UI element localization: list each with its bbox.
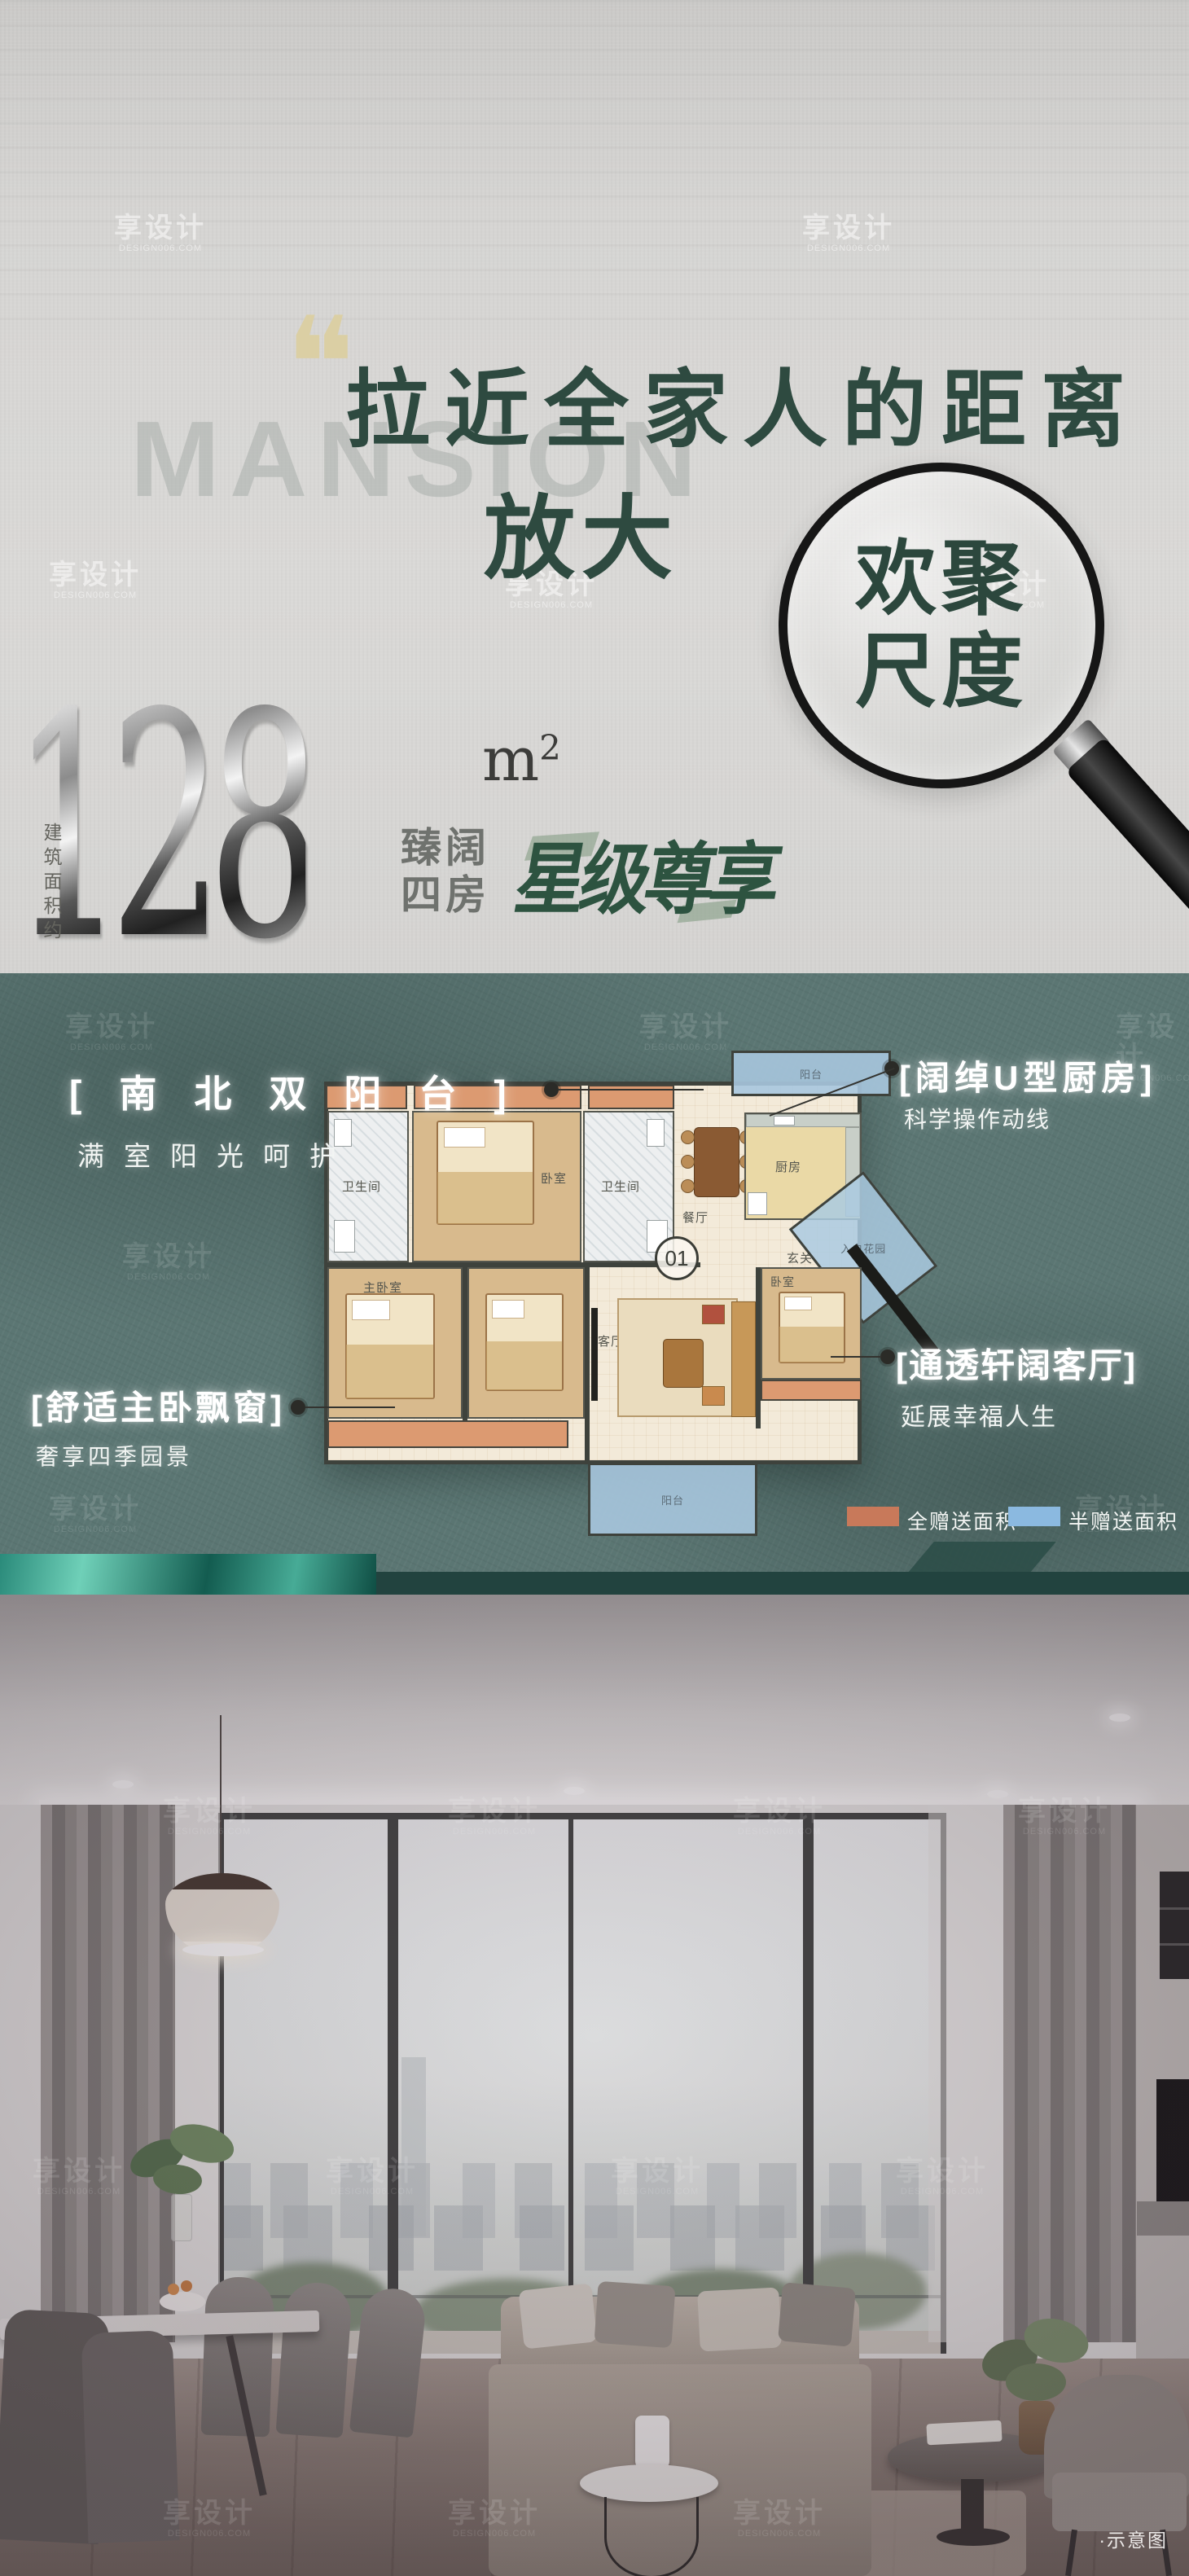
main-title: 拉近全家人的距离 [345, 365, 1140, 456]
schematic-caption: ·示意图 [1099, 2525, 1168, 2552]
unit-number-badge: 01 [655, 1236, 699, 1280]
bed [779, 1292, 845, 1363]
tv-unit [591, 1308, 598, 1401]
legend-label-full-gift: 全赠送面积 [907, 1506, 1017, 1535]
bay-window-strip [761, 1380, 862, 1401]
callout-line [831, 1356, 881, 1358]
dark-teal-bar [376, 1572, 1189, 1595]
layout-line2: 四房 [401, 871, 490, 919]
photo-tint-overlay [0, 1595, 1189, 2576]
bed [437, 1121, 534, 1225]
lens-word-top: 欢聚 [855, 533, 1028, 625]
dining-chair [681, 1130, 695, 1144]
armchair [702, 1305, 725, 1324]
bed [485, 1293, 564, 1391]
callout-title-kitchen: [阔绰U型厨房] [899, 1051, 1156, 1100]
lens-word-bottom: 尺度 [855, 625, 1028, 718]
callout-sub-baywindow: 奢享四季园景 [36, 1439, 192, 1472]
magnifier-lens-icon: 欢聚 尺度 [779, 463, 1104, 788]
legend-swatch-half-gift [1008, 1507, 1060, 1526]
hero-section: 享设计DESIGN006.COM 享设计DESIGN006.COM 享设计DES… [0, 0, 1189, 973]
callout-title-livingroom: [通透轩阔客厅] [896, 1338, 1137, 1388]
callout-sub-kitchen: 科学操作动线 [904, 1102, 1051, 1134]
callout-dot [544, 1082, 559, 1097]
callout-dot [291, 1400, 305, 1415]
dining-chair [681, 1155, 695, 1169]
build-area-note: 建筑面积约 [37, 823, 65, 945]
floorplan: 阳台 卫生间 卧室 卫生间 餐厅 [318, 1049, 924, 1538]
armchair [702, 1386, 725, 1406]
room-balcony-top: 阳台 [731, 1051, 891, 1096]
bed [345, 1293, 435, 1399]
callout-sub-balcony: 满室阳光呵护 [77, 1134, 356, 1174]
dining-chair [681, 1179, 695, 1193]
interior-photo: 享设计DESIGN006.COM 享设计DESIGN006.COM 享设计DES… [0, 1595, 1189, 2576]
callout-line [305, 1406, 395, 1408]
legend-label-half-gift: 半赠送面积 [1068, 1506, 1178, 1535]
kitchen-counter [746, 1114, 860, 1127]
slogan: 星级尊享 [508, 816, 786, 929]
coffee-table [663, 1339, 704, 1388]
bay-window-strip [327, 1420, 568, 1448]
subtitle-prefix: 放大 [484, 494, 679, 585]
bath-fixture [647, 1119, 665, 1147]
bath-fixture [334, 1220, 355, 1253]
fridge [748, 1192, 767, 1215]
area-unit: m2 [482, 730, 561, 790]
room-balcony-bottom: 阳台 [588, 1463, 757, 1536]
sofa [731, 1301, 756, 1417]
callout-dot [880, 1349, 895, 1364]
callout-title-balcony: [南北双阳台] [69, 1064, 544, 1118]
floorplan-section: 享设计DESIGN006.COM 享设计DESIGN006.COM 享设计DES… [0, 973, 1189, 1595]
legend-swatch-full-gift [847, 1507, 899, 1526]
callout-sub-livingroom: 延展幸福人生 [901, 1397, 1057, 1433]
real-estate-poster: 享设计DESIGN006.COM 享设计DESIGN006.COM 享设计DES… [0, 0, 1189, 2576]
teal-gradient-bar [0, 1554, 376, 1595]
callout-title-baywindow: [舒适主卧飘窗] [31, 1380, 285, 1430]
texture-streaks [0, 0, 1189, 342]
dining-table [694, 1127, 739, 1197]
layout-line1: 臻阔 [401, 824, 490, 871]
callout-line [559, 1089, 704, 1091]
kitchen-sink [774, 1116, 795, 1126]
wall [585, 1267, 590, 1464]
layout-description: 臻阔 四房 [401, 824, 490, 919]
